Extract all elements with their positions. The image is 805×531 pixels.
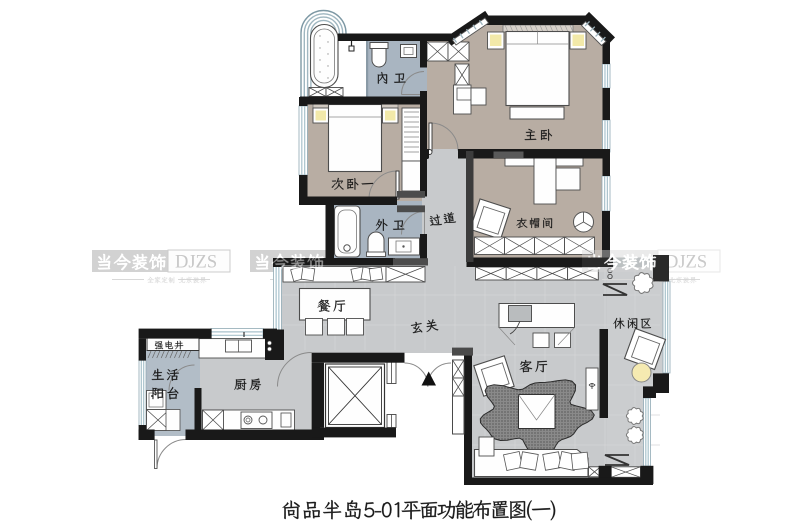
svg-text:DJZS: DJZS xyxy=(665,253,707,273)
svg-text:DJZS: DJZS xyxy=(175,253,217,273)
